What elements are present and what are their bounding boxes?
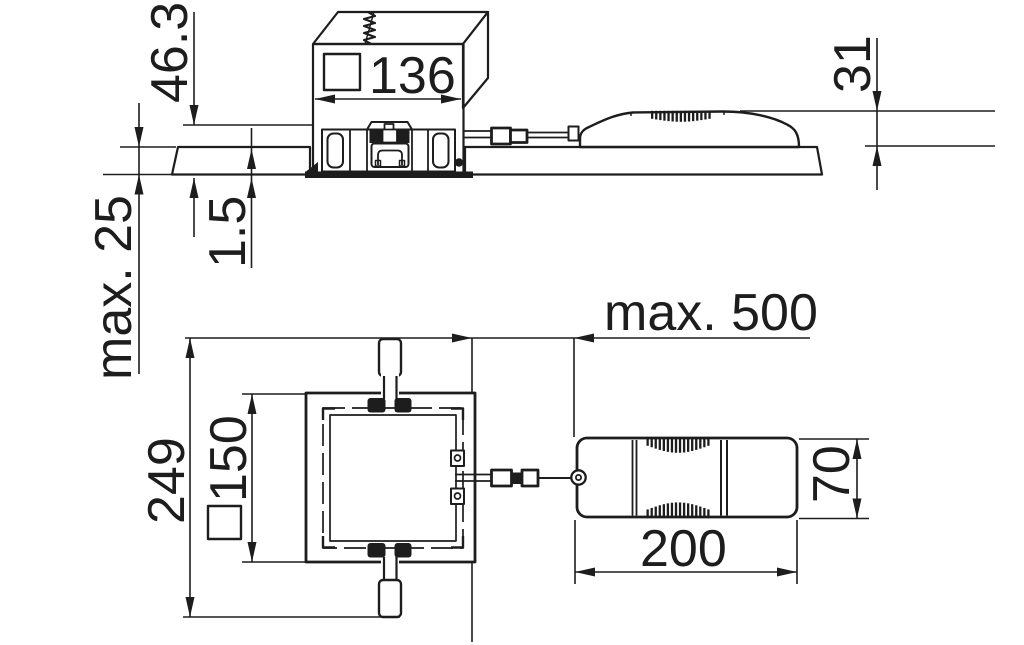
technical-drawing: 46.3 max. 25 1.5 31 (0, 0, 1024, 645)
driver-plan-view (571, 438, 797, 517)
ceiling-slab-left (172, 147, 310, 175)
connector-plug (492, 470, 512, 486)
dim-cutout-width: 136 (315, 47, 461, 105)
led-channel (372, 144, 409, 168)
cable-length-label: max. 500 (604, 284, 818, 342)
cable-gland (569, 127, 579, 141)
drawing-canvas: 46.3 max. 25 1.5 31 (0, 0, 1024, 645)
frame-size-label: 150 (200, 415, 258, 502)
section-view: 46.3 max. 25 1.5 31 (85, 2, 995, 380)
driver-length-label: 200 (640, 520, 727, 578)
square-symbol-icon (208, 506, 241, 539)
dim-frame-size: 150 (200, 394, 306, 562)
dim-driver-length: 200 (575, 520, 797, 584)
outer-frame (306, 393, 475, 562)
ceiling-thickness-label: max. 25 (85, 195, 143, 380)
cutout-width-label: 136 (369, 47, 456, 105)
dim-trim-height: 1.5 (199, 128, 257, 268)
fixture-height-label: 46.3 (141, 2, 199, 103)
dim-driver-width: 70 (799, 439, 869, 519)
side-slot-left (328, 134, 344, 168)
dim-ceiling-thickness: max. 25 (85, 103, 176, 380)
square-symbol-icon (324, 54, 360, 90)
connector-socket (522, 470, 538, 486)
driver-height-label: 31 (824, 35, 882, 93)
cable-section (464, 127, 579, 145)
trim-height-label: 1.5 (199, 196, 257, 268)
driver-width-label: 70 (803, 445, 861, 503)
side-slot-right (433, 134, 449, 168)
plan-view: 249 150 max. 500 (138, 284, 869, 642)
connector-plug (492, 128, 511, 144)
trim-flange (305, 172, 473, 179)
ceiling-slab-right (465, 147, 822, 175)
overall-size-label: 249 (138, 437, 196, 524)
connector-socket (511, 130, 528, 143)
cable-entry-dot (455, 158, 463, 166)
dim-driver-height: 31 (740, 35, 995, 190)
driver-side-view (580, 111, 799, 147)
fixture-section (305, 122, 473, 178)
